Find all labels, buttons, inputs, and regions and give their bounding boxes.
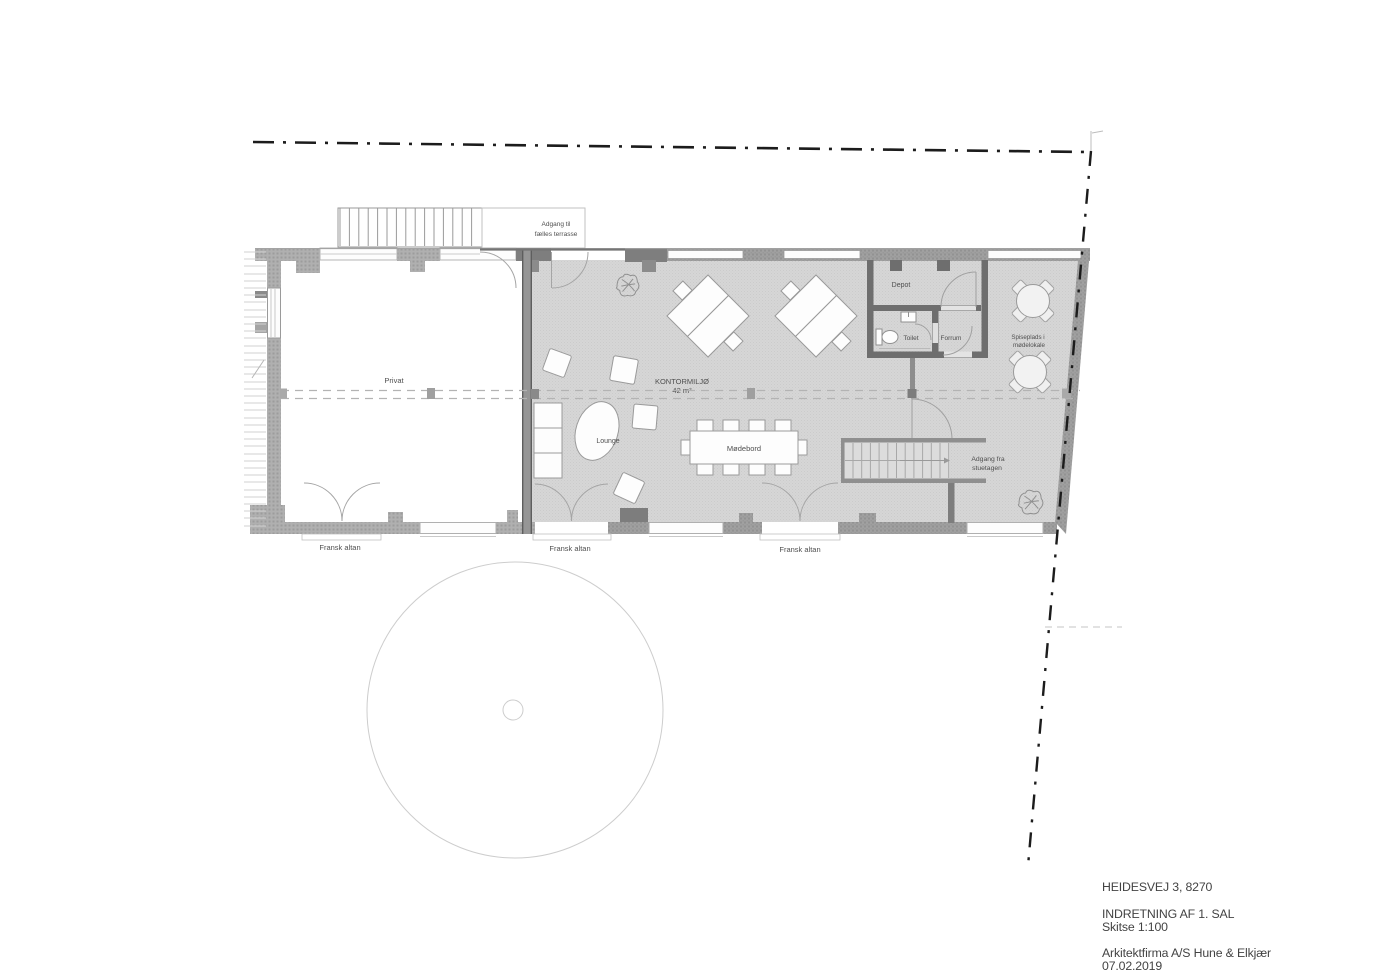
svg-text:07.02.2019: 07.02.2019 bbox=[1102, 959, 1162, 973]
svg-text:Adgang til: Adgang til bbox=[542, 221, 571, 228]
svg-text:KONTORMILJØ: KONTORMILJØ bbox=[655, 377, 709, 386]
svg-text:Forrum: Forrum bbox=[941, 335, 962, 342]
svg-text:Adgang fra: Adgang fra bbox=[971, 456, 1004, 463]
svg-text:HEIDESVEJ 3, 8270: HEIDESVEJ 3, 8270 bbox=[1102, 880, 1213, 894]
svg-text:Arkitektfirma A/S Hune & Elkjæ: Arkitektfirma A/S Hune & Elkjær bbox=[1102, 946, 1271, 960]
svg-text:Skitse 1:100: Skitse 1:100 bbox=[1102, 920, 1168, 934]
svg-text:Spiseplads i: Spiseplads i bbox=[1011, 334, 1044, 341]
svg-text:Fransk altan: Fransk altan bbox=[319, 543, 360, 552]
svg-text:Lounge: Lounge bbox=[596, 438, 619, 445]
svg-text:fælles terrasse: fælles terrasse bbox=[535, 231, 578, 238]
svg-text:INDRETNING AF 1. SAL: INDRETNING AF 1. SAL bbox=[1102, 907, 1235, 921]
svg-text:Toilet: Toilet bbox=[903, 335, 918, 342]
svg-text:stuetagen: stuetagen bbox=[972, 465, 1002, 472]
svg-text:Mødebord: Mødebord bbox=[727, 444, 761, 453]
svg-text:Depot: Depot bbox=[892, 282, 911, 289]
svg-text:Fransk altan: Fransk altan bbox=[549, 544, 590, 553]
svg-text:Privat: Privat bbox=[384, 376, 404, 385]
svg-text:mødelokale: mødelokale bbox=[1013, 342, 1046, 349]
svg-text:Fransk altan: Fransk altan bbox=[779, 545, 820, 554]
